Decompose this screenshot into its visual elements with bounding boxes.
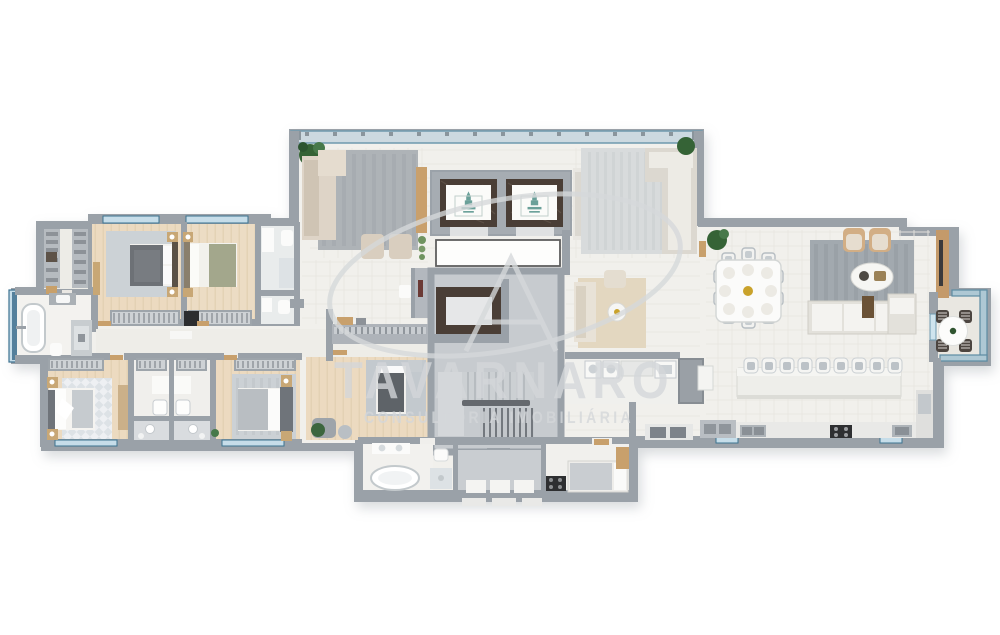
svg-text:CONSULTORIA IMOBILIÁRIA: CONSULTORIA IMOBILIÁRIA <box>364 408 634 427</box>
svg-text:TAVARNARO: TAVARNARO <box>334 352 674 410</box>
